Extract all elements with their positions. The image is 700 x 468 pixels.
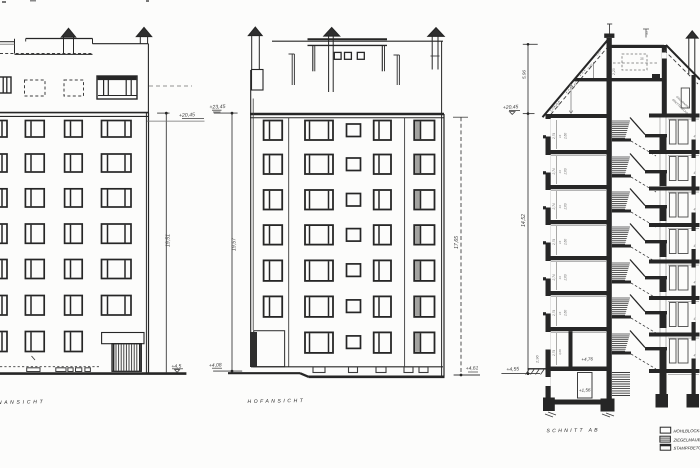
svg-text:2,74: 2,74 (552, 133, 556, 140)
svg-text:35: 35 (645, 31, 649, 35)
svg-text:2,60: 2,60 (564, 168, 568, 175)
svg-text:+20,45: +20,45 (179, 112, 195, 119)
svg-text:2,96: 2,96 (535, 354, 540, 364)
svg-text:2,20: 2,20 (612, 68, 616, 76)
svg-text:2,74: 2,74 (552, 350, 556, 357)
svg-text:+20,45: +20,45 (503, 104, 519, 111)
svg-text:+1,56: +1,56 (579, 387, 591, 393)
svg-text:2,60: 2,60 (564, 133, 568, 140)
svg-text:2,60: 2,60 (564, 203, 568, 210)
svg-text:2,74: 2,74 (552, 239, 556, 246)
svg-text:STAMPFBETON: STAMPFBETON (673, 445, 700, 451)
svg-text:14: 14 (558, 205, 562, 209)
svg-text:4: 4 (694, 244, 696, 248)
svg-text:+4,55: +4,55 (506, 366, 519, 373)
svg-text:14: 14 (558, 311, 562, 315)
svg-text:+23,45: +23,45 (209, 104, 225, 111)
svg-text:2,60: 2,60 (564, 239, 568, 246)
svg-text:19,51: 19,51 (166, 234, 172, 247)
svg-text:3,00: 3,00 (558, 349, 562, 355)
svg-text:14: 14 (558, 240, 562, 244)
svg-text:2,74: 2,74 (552, 274, 556, 281)
svg-text:5,96: 5,96 (522, 70, 527, 79)
svg-text:4: 4 (694, 171, 696, 175)
svg-text:4: 4 (694, 208, 696, 212)
svg-text:14: 14 (558, 170, 562, 174)
svg-text:19,57: 19,57 (231, 237, 237, 251)
svg-text:H O F A N S I C H T: H O F A N S I C H T (247, 398, 303, 405)
svg-text:17,65: 17,65 (454, 236, 460, 249)
svg-text:2,74: 2,74 (552, 168, 556, 175)
svg-text:2,60: 2,60 (564, 310, 568, 317)
svg-text:2,74: 2,74 (552, 310, 556, 317)
svg-text:N A N S I C H T: N A N S I C H T (0, 399, 44, 406)
svg-text:4: 4 (694, 135, 696, 139)
svg-text:2,74: 2,74 (552, 203, 556, 210)
svg-text:14,52: 14,52 (521, 214, 527, 227)
svg-text:+4,61: +4,61 (466, 365, 479, 372)
svg-text:4: 4 (694, 354, 696, 358)
svg-text:14: 14 (558, 134, 562, 138)
svg-text:4: 4 (694, 317, 696, 321)
svg-text:HOHLBLOCKSTEINE: HOHLBLOCKSTEINE (673, 428, 700, 434)
svg-text:ZIEGELMAUERWERK: ZIEGELMAUERWERK (672, 437, 700, 443)
svg-text:+4,76: +4,76 (581, 356, 593, 362)
svg-text:2,60: 2,60 (564, 274, 568, 281)
svg-text:35: 35 (640, 57, 644, 61)
svg-text:4: 4 (694, 281, 696, 285)
svg-text:S C H N I T T A B: S C H N I T T A B (546, 427, 598, 434)
svg-text:14: 14 (558, 276, 562, 280)
